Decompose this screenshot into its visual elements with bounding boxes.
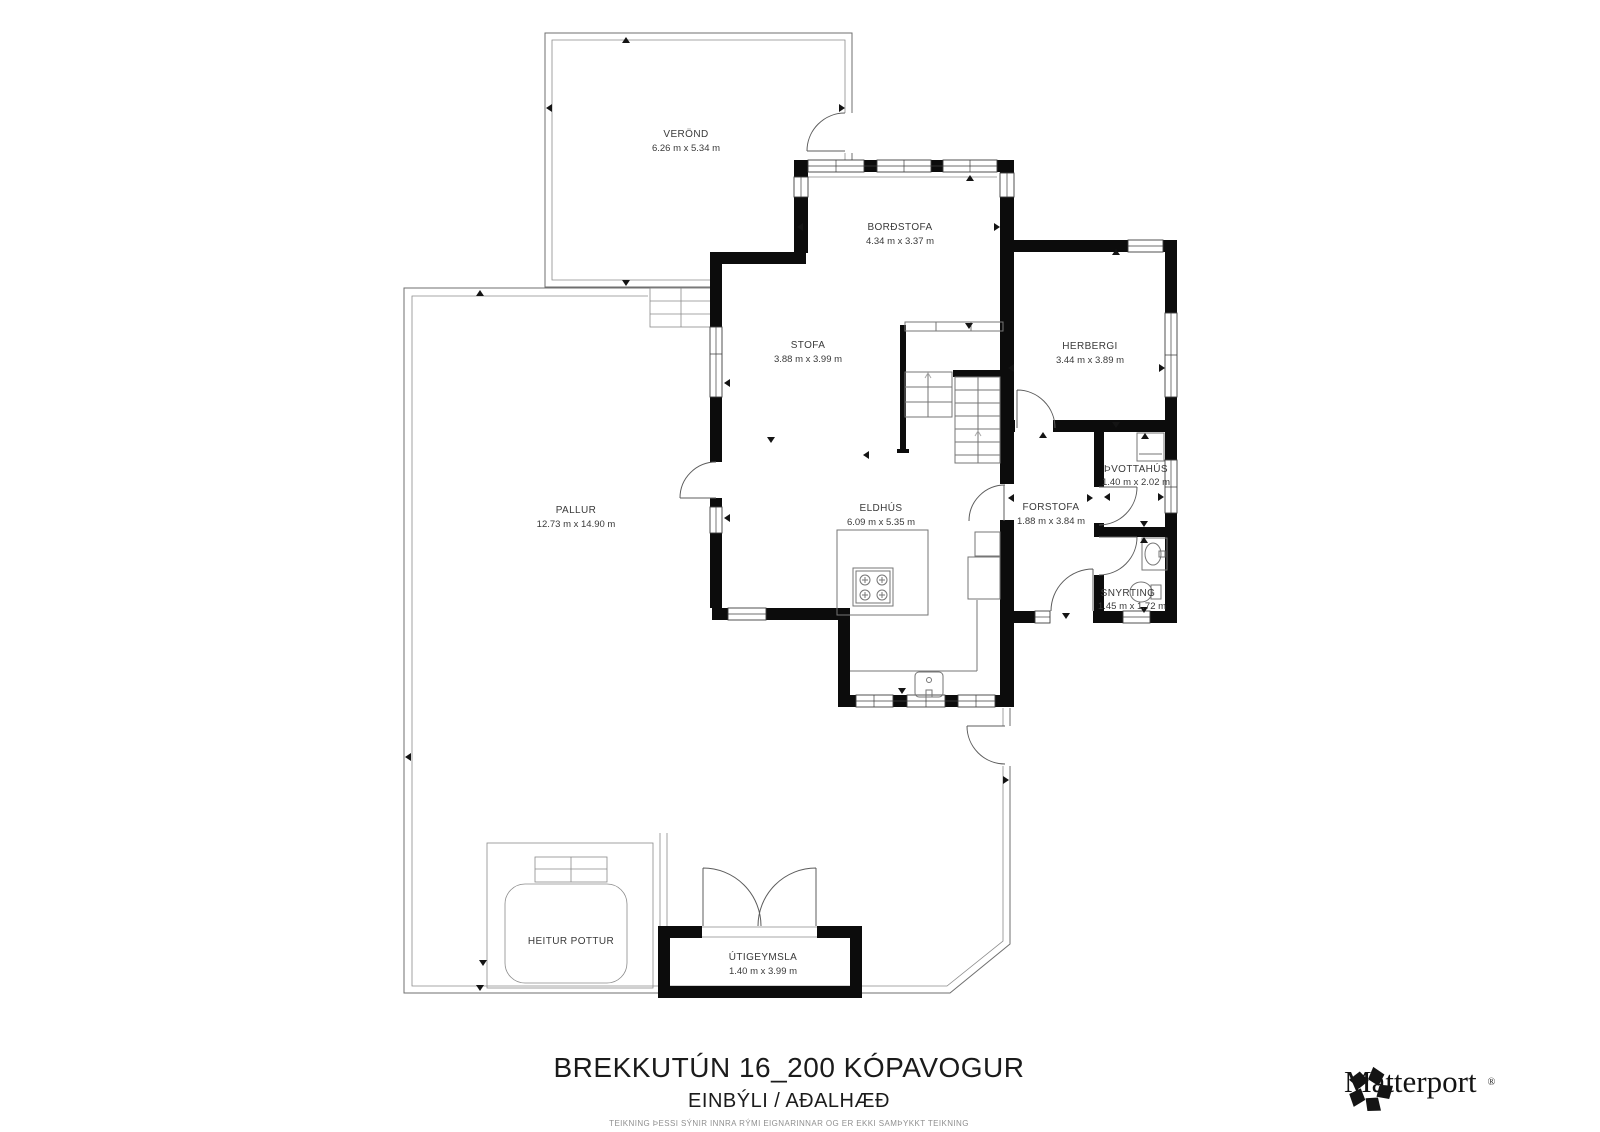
kitchen-island (837, 530, 928, 615)
bedroom-door-arc (1017, 390, 1055, 428)
plan-disclaimer: TEIKNING ÞESSI SÝNIR INNRA RÝMI EIGNARIN… (609, 1119, 969, 1128)
kitchen-counter-line (850, 600, 977, 671)
room-dims-verond: 6.26 m x 5.34 m (652, 143, 720, 154)
exterior-steps (650, 288, 712, 327)
walls (658, 160, 1177, 998)
registered-mark: ® (1488, 1077, 1496, 1088)
hot-tub (487, 843, 653, 988)
room-labels: VERÖND 6.26 m x 5.34 m BORÐSTOFA 4.34 m … (528, 128, 1170, 977)
kitchen-counter (975, 532, 1000, 556)
bath-fixtures (1130, 433, 1167, 602)
room-label-herbergi: HERBERGI (1062, 341, 1117, 352)
matterport-logo: Matterport® (1344, 1064, 1495, 1100)
washer-icon (1137, 433, 1164, 461)
room-label-utigeymsla: ÚTIGEYMSLA (729, 950, 797, 963)
room-label-pallur: PALLUR (556, 505, 597, 516)
dimension-markers (405, 37, 1165, 991)
deck-gate-door-arc (967, 726, 1005, 764)
room-label-heitur-pottur: HEITUR POTTUR (528, 936, 614, 947)
doors (680, 390, 1137, 937)
room-dims-snyrting: 1.45 m x 1.72 m (1098, 601, 1166, 612)
laundry-door-arc (1099, 487, 1137, 525)
room-dims-stofa: 3.88 m x 3.99 m (774, 354, 842, 365)
plan-title: BREKKUTÚN 16_200 KÓPAVOGUR (553, 1052, 1024, 1084)
room-label-thvottahus: ÞVOTTAHÚS (1104, 462, 1168, 475)
room-label-verond: VERÖND (663, 128, 708, 140)
kitchen-deck-door-arc (680, 462, 716, 498)
room-dims-thvottahus: 1.40 m x 2.02 m (1102, 477, 1170, 488)
room-label-forstofa: FORSTOFA (1023, 502, 1080, 513)
deck-outline (404, 288, 1010, 993)
room-dims-utigeymsla: 1.40 m x 3.99 m (729, 966, 797, 977)
floor-plan-page: VERÖND 6.26 m x 5.34 m BORÐSTOFA 4.34 m … (0, 0, 1600, 1132)
room-dims-pallur: 12.73 m x 14.90 m (537, 519, 616, 530)
room-dims-herbergi: 3.44 m x 3.89 m (1056, 355, 1124, 366)
room-dims-bordstofa: 4.34 m x 3.37 m (866, 236, 934, 247)
veranda-gate-door-arc (807, 113, 845, 151)
kitchen-sink-icon (915, 672, 943, 697)
staircase (905, 322, 1003, 463)
room-dims-eldhus: 6.09 m x 5.35 m (847, 517, 915, 528)
front-door-arc (1051, 569, 1093, 611)
plan-subtitle: EINBÝLI / AÐALHÆÐ (688, 1090, 890, 1113)
wc-door-arc (1099, 537, 1137, 575)
room-label-stofa: STOFA (791, 340, 826, 351)
deck-fence-line (660, 833, 667, 926)
stove-icon (853, 568, 893, 606)
kitchen-fridge (968, 557, 1000, 599)
room-dims-forstofa: 1.88 m x 3.84 m (1017, 516, 1085, 527)
kitchen-fixtures (837, 530, 1000, 697)
kitchen-hall-door-arc (969, 485, 1005, 521)
floor-plan-drawing: VERÖND 6.26 m x 5.34 m BORÐSTOFA 4.34 m … (0, 0, 1600, 1132)
storage-double-doors (702, 868, 817, 937)
matterport-logo-icon (1344, 1064, 1396, 1116)
room-label-snyrting: SNYRTING (1101, 588, 1156, 599)
room-label-bordstofa: BORÐSTOFA (867, 222, 932, 233)
room-label-eldhus: ELDHÚS (860, 501, 903, 514)
